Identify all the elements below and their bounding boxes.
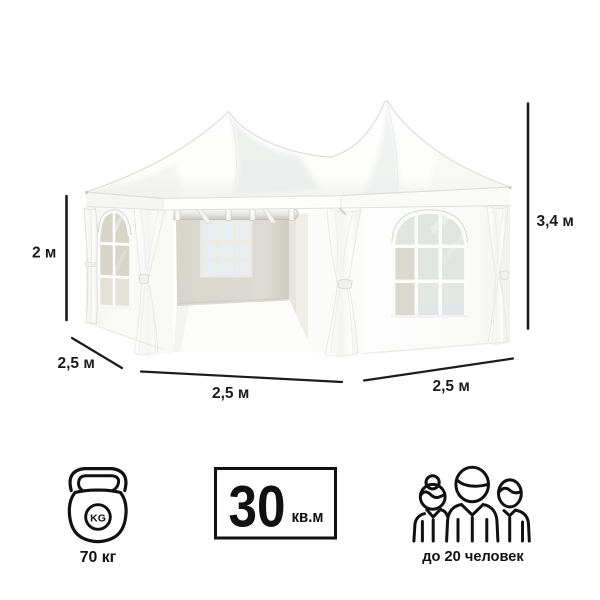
- svg-text:3,4 м: 3,4 м: [537, 213, 574, 230]
- svg-text:2,5 м: 2,5 м: [212, 385, 249, 402]
- svg-text:2,5 м: 2,5 м: [433, 378, 470, 395]
- svg-text:до 20 человек: до 20 человек: [422, 548, 524, 565]
- svg-text:70 кг: 70 кг: [80, 549, 117, 566]
- svg-text:30: 30: [229, 475, 286, 540]
- svg-text:2,5 м: 2,5 м: [58, 355, 95, 372]
- svg-text:кв.м: кв.м: [292, 507, 324, 526]
- svg-text:KG: KG: [90, 513, 106, 525]
- svg-text:2 м: 2 м: [32, 245, 56, 262]
